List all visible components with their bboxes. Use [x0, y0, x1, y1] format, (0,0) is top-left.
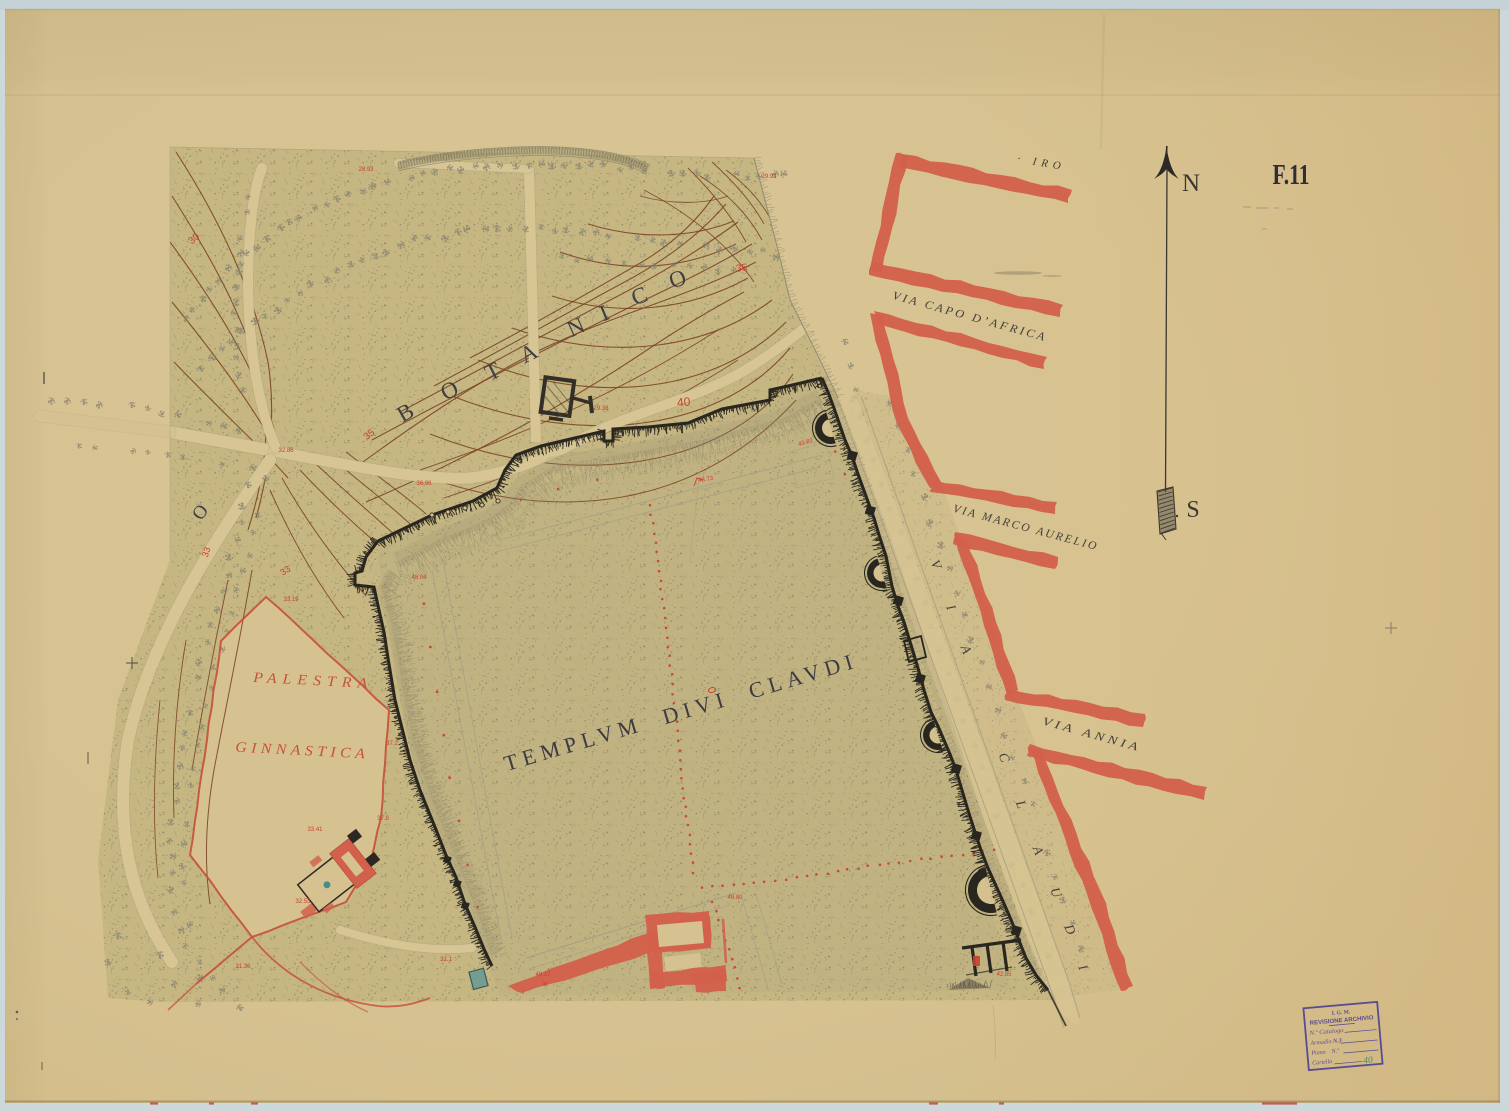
svg-text:28.93: 28.93 [358, 167, 374, 173]
svg-text:36.96: 36.96 [416, 481, 432, 487]
svg-text:40: 40 [676, 394, 691, 409]
svg-text:33.19: 33.19 [283, 597, 299, 603]
svg-text:S: S [1186, 497, 1199, 523]
svg-text:48: 48 [542, 982, 548, 988]
svg-text:40: 40 [1363, 1055, 1374, 1066]
svg-text:29.93: 29.93 [761, 174, 777, 180]
svg-text:37.8: 37.8 [377, 816, 389, 822]
svg-text:33.41: 33.41 [307, 827, 323, 833]
svg-text:32.53: 32.53 [295, 899, 311, 905]
svg-text:49.80: 49.80 [727, 895, 743, 901]
svg-text:42.85: 42.85 [996, 972, 1012, 978]
svg-text:F.11: F.11 [1273, 160, 1310, 191]
svg-text:32.1: 32.1 [440, 957, 452, 963]
svg-text:48.04: 48.04 [411, 575, 427, 581]
svg-text:37.2: 37.2 [386, 741, 398, 747]
svg-text:35: 35 [735, 262, 748, 275]
svg-text:31.36: 31.36 [235, 964, 251, 970]
svg-text:32.86: 32.86 [278, 448, 294, 454]
svg-text:29.38: 29.38 [593, 406, 609, 412]
svg-text:48.17: 48.17 [535, 972, 551, 978]
svg-text:N: N [1182, 170, 1200, 197]
